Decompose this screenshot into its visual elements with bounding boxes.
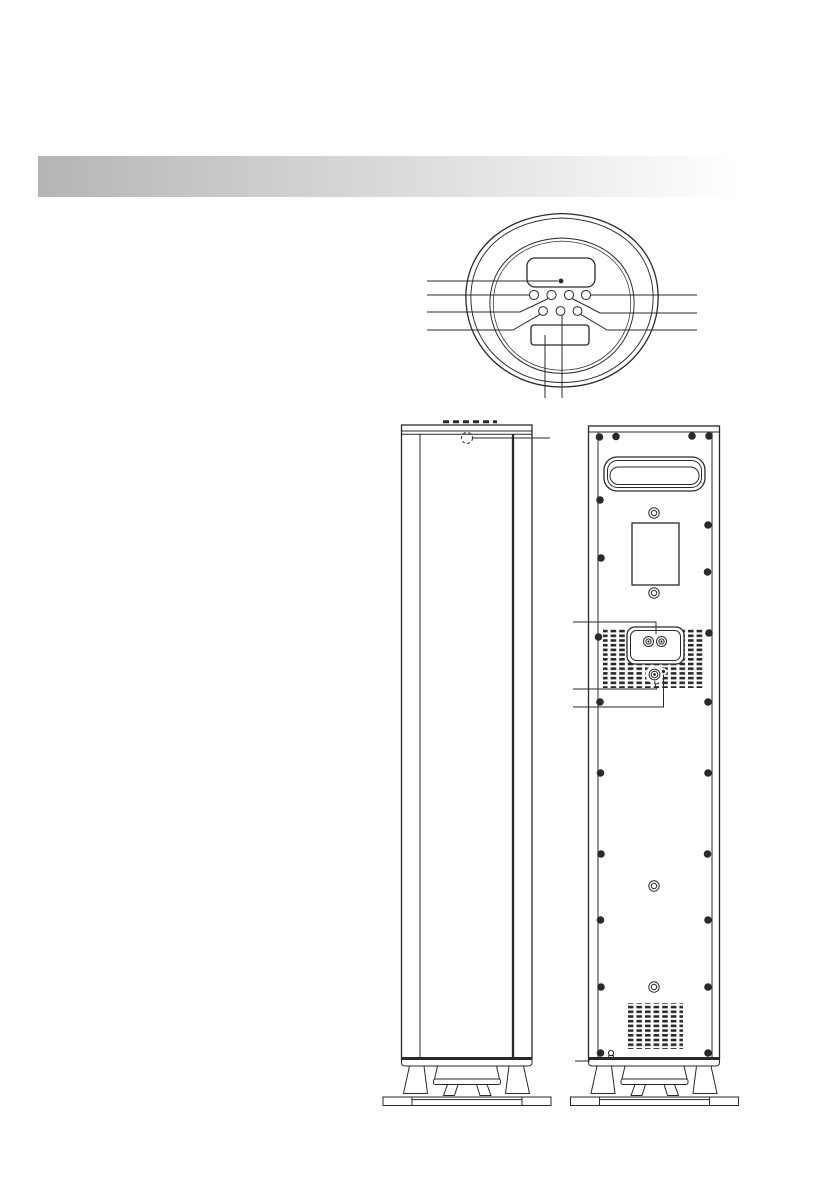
back-base-plate: [571, 1097, 739, 1106]
button-row-2: [539, 307, 582, 316]
header-gradient-bar: [38, 156, 740, 197]
front-pedestal: [404, 1066, 530, 1096]
back-cabinet: [589, 426, 720, 1059]
lower-panel: [531, 325, 589, 345]
front-base-plate: [383, 1097, 551, 1106]
top-view: [427, 214, 697, 399]
display-dot: [559, 279, 564, 284]
front-view: [383, 422, 551, 1106]
manual-page: [0, 0, 839, 1191]
label-plate: [632, 523, 679, 585]
product-diagram: [0, 0, 839, 1191]
panel-screws: [595, 432, 713, 1057]
bottom-connector: [608, 1050, 613, 1058]
back-view: [571, 426, 739, 1106]
bottom-vent-grid: [628, 1003, 683, 1049]
back-pedestal: [591, 1066, 717, 1096]
front-bottom-cap: [402, 1060, 533, 1067]
center-ring-screws: [649, 508, 659, 992]
back-bottom-cap: [589, 1060, 720, 1067]
top-view-callout-lines: [427, 281, 697, 398]
carry-handle-recess: [604, 457, 705, 491]
indicator-dot: [662, 670, 665, 673]
knob: [649, 669, 660, 680]
button-row-1: [529, 290, 590, 299]
